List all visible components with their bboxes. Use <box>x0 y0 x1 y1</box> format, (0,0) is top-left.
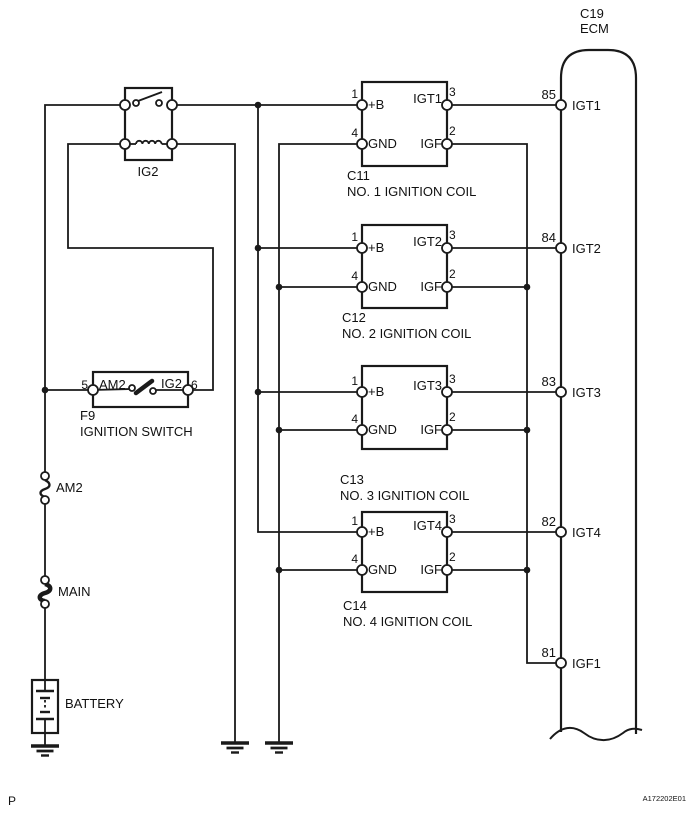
ecm-pin <box>556 243 566 253</box>
coil-pin-b <box>357 387 367 397</box>
junction-dot <box>276 567 283 574</box>
relay-terminal <box>120 139 130 149</box>
pin-label: +B <box>368 240 384 255</box>
pin-number: 1 <box>351 514 358 528</box>
wire-gnd-bus <box>279 144 362 742</box>
fusible-link-label: MAIN <box>58 584 91 599</box>
pin-label: IGF <box>420 136 442 151</box>
switch-contact <box>150 388 156 394</box>
pin-number: 1 <box>351 87 358 101</box>
ecm-connector: C19 ECM 85 IGT1 84 IGT2 83 IGT3 82 IGT4 … <box>542 6 642 740</box>
ecm-pin <box>556 527 566 537</box>
coil-name: NO. 1 IGNITION COIL <box>347 184 476 199</box>
ecm-pin-signal: IGT1 <box>572 98 601 113</box>
ecm-pin <box>556 100 566 110</box>
ignition-coil-c12: 1 +B IGT2 3 4 GND IGF 2 C12 NO. 2 IGNITI… <box>342 225 471 341</box>
pin-label: IGF <box>420 562 442 577</box>
ecm-pin <box>556 387 566 397</box>
wire-ig2-coil-feed <box>68 144 213 390</box>
junction-dot <box>524 567 531 574</box>
ignition-system-wiring-diagram: IG2 1 +B IGT1 3 4 GND IGF 2 C11 NO. 1 IG… <box>0 0 690 820</box>
pin-number: 4 <box>351 269 358 283</box>
wire-relay-coil-ground <box>172 144 235 742</box>
coil-pin-gnd <box>357 282 367 292</box>
ecm-name: ECM <box>580 21 609 36</box>
coil-pin-igt <box>442 100 452 110</box>
pin-label: GND <box>368 562 397 577</box>
junction-dot <box>276 284 283 291</box>
pin-label: IGF <box>420 422 442 437</box>
fuse-am2: AM2 <box>41 472 83 504</box>
coil-pin-igf <box>442 565 452 575</box>
relay-terminal <box>167 100 177 110</box>
fuse-terminal <box>41 472 49 480</box>
junction-dot <box>524 284 531 291</box>
pin-number: 2 <box>449 410 456 424</box>
ignition-coil-c13: 1 +B IGT3 3 4 GND IGF 2 C13 NO. 3 IGNITI… <box>340 366 469 503</box>
switch-contact-label: AM2 <box>99 377 126 392</box>
pin-number: 4 <box>351 552 358 566</box>
pin-number: 2 <box>449 124 456 138</box>
pin-number: 6 <box>191 378 198 392</box>
pin-label: IGT3 <box>413 378 442 393</box>
diagram-canvas: IG2 1 +B IGT1 3 4 GND IGF 2 C11 NO. 1 IG… <box>0 0 690 820</box>
switch-connector-id: F9 <box>80 408 95 423</box>
ground-symbol-battery <box>31 746 59 756</box>
coil-pin-igt <box>442 387 452 397</box>
pin-number: 1 <box>351 230 358 244</box>
fuse-terminal <box>41 496 49 504</box>
ecm-pin-terminal: 85 <box>542 87 556 102</box>
junction-dot <box>42 387 49 394</box>
coil-pin-gnd <box>357 565 367 575</box>
ground-symbol-relay <box>221 743 249 753</box>
coil-pin-igt <box>442 527 452 537</box>
junction-dot <box>255 102 262 109</box>
ignition-coil-c11: 1 +B IGT1 3 4 GND IGF 2 C11 NO. 1 IGNITI… <box>347 82 476 199</box>
switch-contact <box>129 385 135 391</box>
pin-label: IGT4 <box>413 518 442 533</box>
fusible-link-element <box>40 584 51 601</box>
pin-label: GND <box>368 136 397 151</box>
ecm-pin-signal: IGT4 <box>572 525 601 540</box>
relay-switch-contact <box>133 100 139 106</box>
pin-label: +B <box>368 524 384 539</box>
ecm-pin-terminal: 84 <box>542 230 556 245</box>
coil-pin-igf <box>442 282 452 292</box>
pin-number: 2 <box>449 267 456 281</box>
pin-label: +B <box>368 384 384 399</box>
switch-contact-label: IG2 <box>161 376 182 391</box>
coil-pin-b <box>357 243 367 253</box>
relay-terminal <box>167 139 177 149</box>
ground-symbol-coils <box>265 743 293 753</box>
junction-dot <box>524 427 531 434</box>
coil-pin-b <box>357 100 367 110</box>
pin-number: 2 <box>449 550 456 564</box>
junction-dot <box>255 389 262 396</box>
pin-number: 5 <box>81 378 88 392</box>
pin-label: +B <box>368 97 384 112</box>
ecm-pin-terminal: 82 <box>542 514 556 529</box>
relay-terminal <box>120 100 130 110</box>
pin-label: IGF <box>420 279 442 294</box>
battery-label: BATTERY <box>65 696 124 711</box>
ecm-pin-signal: IGT2 <box>572 241 601 256</box>
pin-label: IGT1 <box>413 91 442 106</box>
relay-switch-contact <box>156 100 162 106</box>
pin-number: 4 <box>351 126 358 140</box>
coil-pin-igf <box>442 139 452 149</box>
pin-number: 1 <box>351 374 358 388</box>
pin-number: 3 <box>449 512 456 526</box>
ecm-pin <box>556 658 566 668</box>
fusible-link-terminal <box>41 600 49 608</box>
ecm-connector-id: C19 <box>580 6 604 21</box>
battery: BATTERY <box>32 680 124 733</box>
coil-connector-id: C14 <box>343 598 367 613</box>
fusible-link-terminal <box>41 576 49 584</box>
coil-pin-gnd <box>357 139 367 149</box>
ignition-switch: 5 AM2 IG2 6 F9 IGNITION SWITCH <box>80 372 198 439</box>
coil-pin-igf <box>442 425 452 435</box>
fuse-label: AM2 <box>56 480 83 495</box>
coil-connector-id: C11 <box>347 168 370 183</box>
ecm-pin-signal: IGF1 <box>572 656 601 671</box>
switch-name: IGNITION SWITCH <box>80 424 193 439</box>
ecm-pin-terminal: 81 <box>542 645 556 660</box>
switch-terminal-5 <box>88 385 98 395</box>
junction-dot <box>276 427 283 434</box>
coil-name: NO. 2 IGNITION COIL <box>342 326 471 341</box>
relay-name-label: IG2 <box>138 164 159 179</box>
wire-igf-bus <box>447 144 561 663</box>
relay-box <box>125 88 172 160</box>
coil-pin-igt <box>442 243 452 253</box>
coil-pin-gnd <box>357 425 367 435</box>
pin-number: 3 <box>449 228 456 242</box>
ig2-relay: IG2 <box>120 88 177 179</box>
ecm-pin-signal: IGT3 <box>572 385 601 400</box>
doc-id: A172202E01 <box>643 794 686 803</box>
coil-connector-id: C13 <box>340 472 364 487</box>
coil-connector-id: C12 <box>342 310 366 325</box>
junction-dot <box>255 245 262 252</box>
fusible-link-main: MAIN <box>40 576 91 608</box>
ecm-pin-terminal: 83 <box>542 374 556 389</box>
coil-name: NO. 4 IGNITION COIL <box>343 614 472 629</box>
pin-label: GND <box>368 422 397 437</box>
pin-number: 3 <box>449 85 456 99</box>
fuse-element <box>41 480 50 497</box>
page-marker: P <box>8 794 16 808</box>
pin-number: 3 <box>449 372 456 386</box>
pin-label: GND <box>368 279 397 294</box>
pin-label: IGT2 <box>413 234 442 249</box>
coil-pin-b <box>357 527 367 537</box>
coil-name: NO. 3 IGNITION COIL <box>340 488 469 503</box>
pin-number: 4 <box>351 412 358 426</box>
relay-coil-winding <box>136 141 162 144</box>
